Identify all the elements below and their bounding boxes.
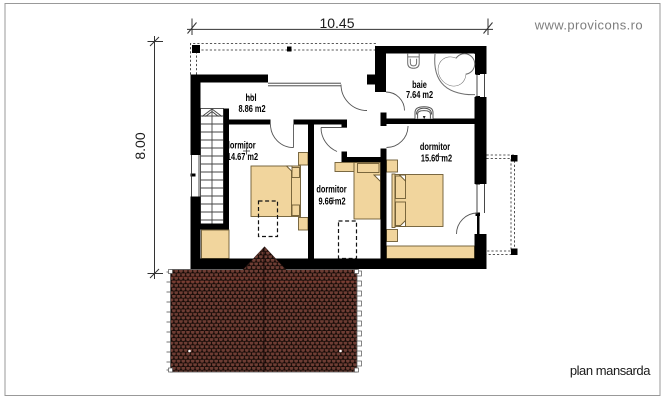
svg-text:10.45: 10.45 — [319, 15, 354, 31]
svg-text:www.provicons.ro: www.provicons.ro — [534, 18, 643, 33]
svg-text:dormitor: dormitor — [225, 139, 256, 150]
svg-text:dormitor: dormitor — [316, 183, 347, 194]
svg-text:7.64 m2: 7.64 m2 — [406, 89, 433, 100]
svg-text:8.00: 8.00 — [132, 132, 148, 159]
svg-text:dormitor: dormitor — [420, 141, 451, 152]
svg-text:14.67 m2: 14.67 m2 — [227, 151, 258, 162]
svg-text:plan mansarda: plan mansarda — [570, 363, 651, 378]
svg-text:15.60 m2: 15.60 m2 — [421, 152, 452, 163]
svg-text:8.86 m2: 8.86 m2 — [238, 103, 265, 114]
